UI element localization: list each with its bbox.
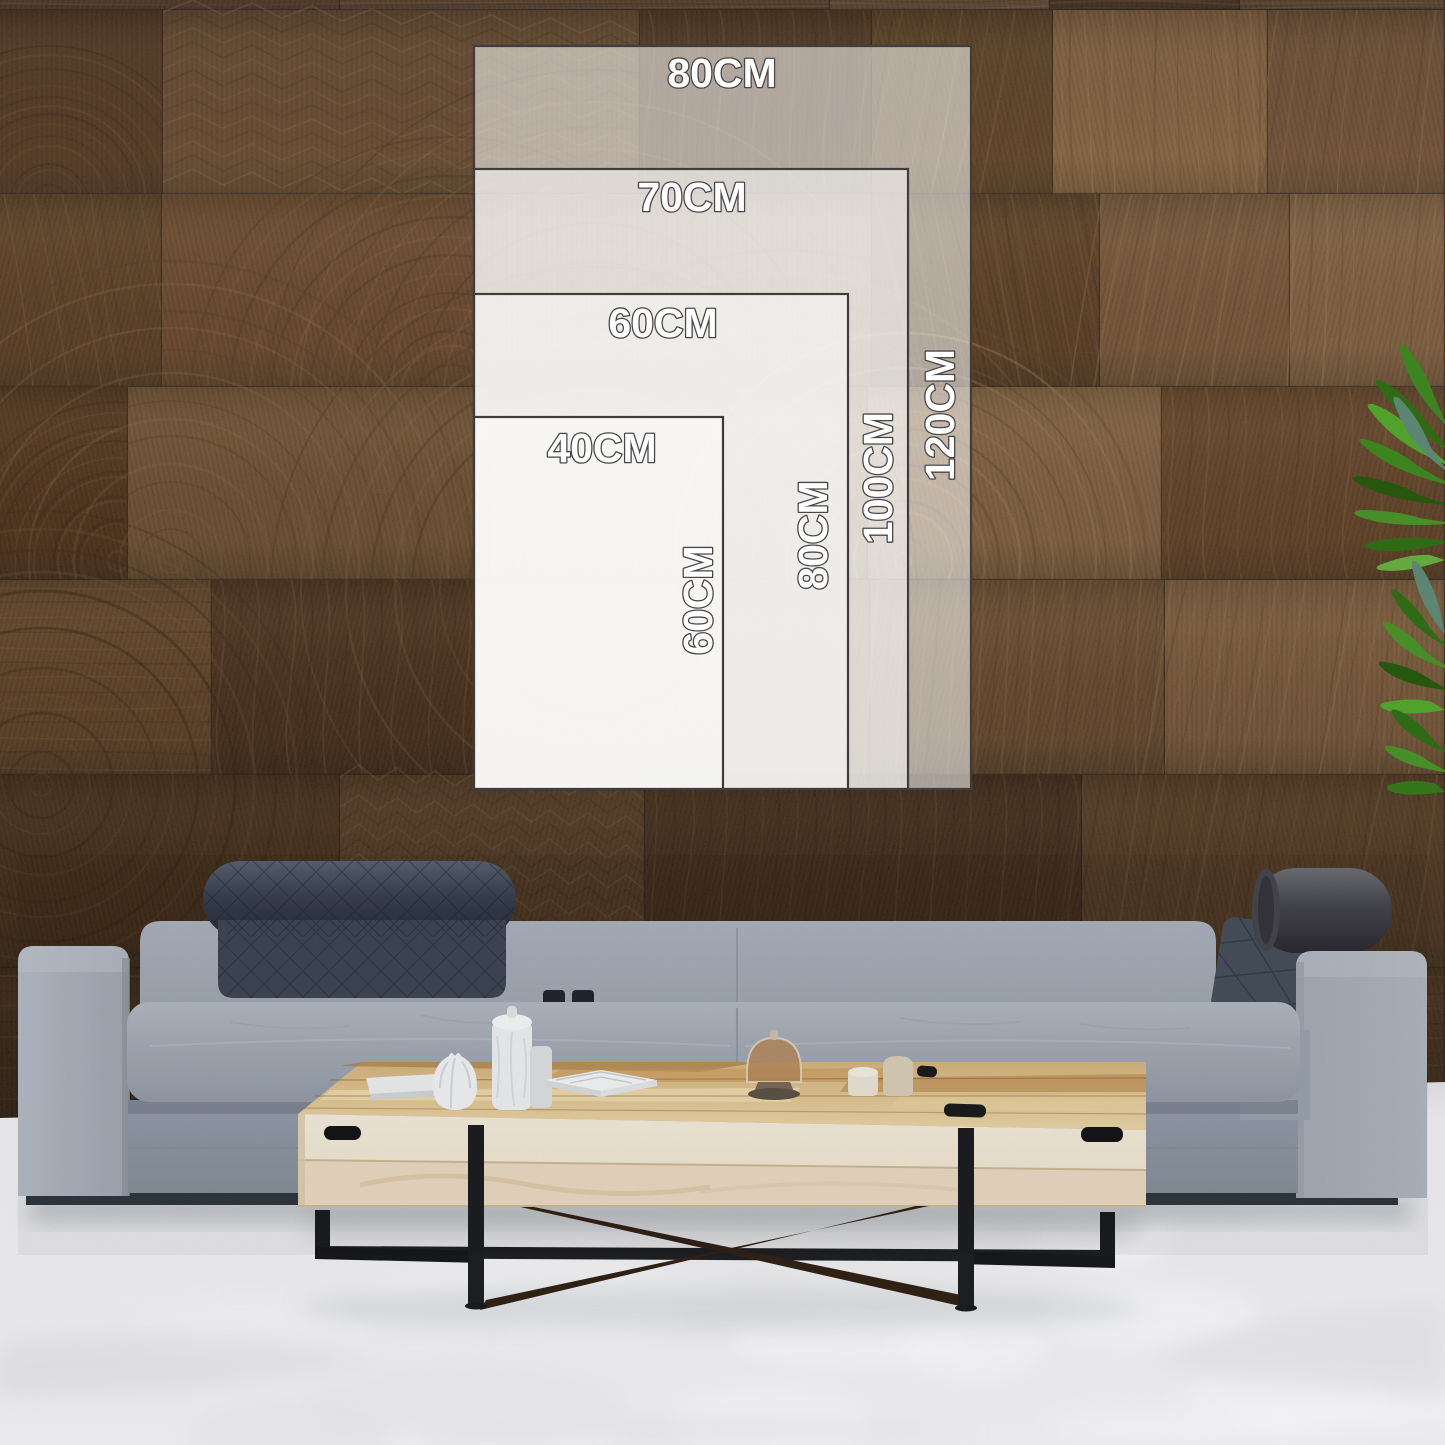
svg-text:100CM: 100CM <box>855 412 901 544</box>
svg-text:40CM: 40CM <box>547 425 656 471</box>
svg-text:120CM: 120CM <box>917 349 963 481</box>
svg-text:80CM: 80CM <box>790 480 836 589</box>
svg-text:60CM: 60CM <box>608 300 717 346</box>
svg-text:60CM: 60CM <box>675 545 721 654</box>
svg-text:70CM: 70CM <box>637 174 746 220</box>
svg-text:80CM: 80CM <box>667 50 776 96</box>
